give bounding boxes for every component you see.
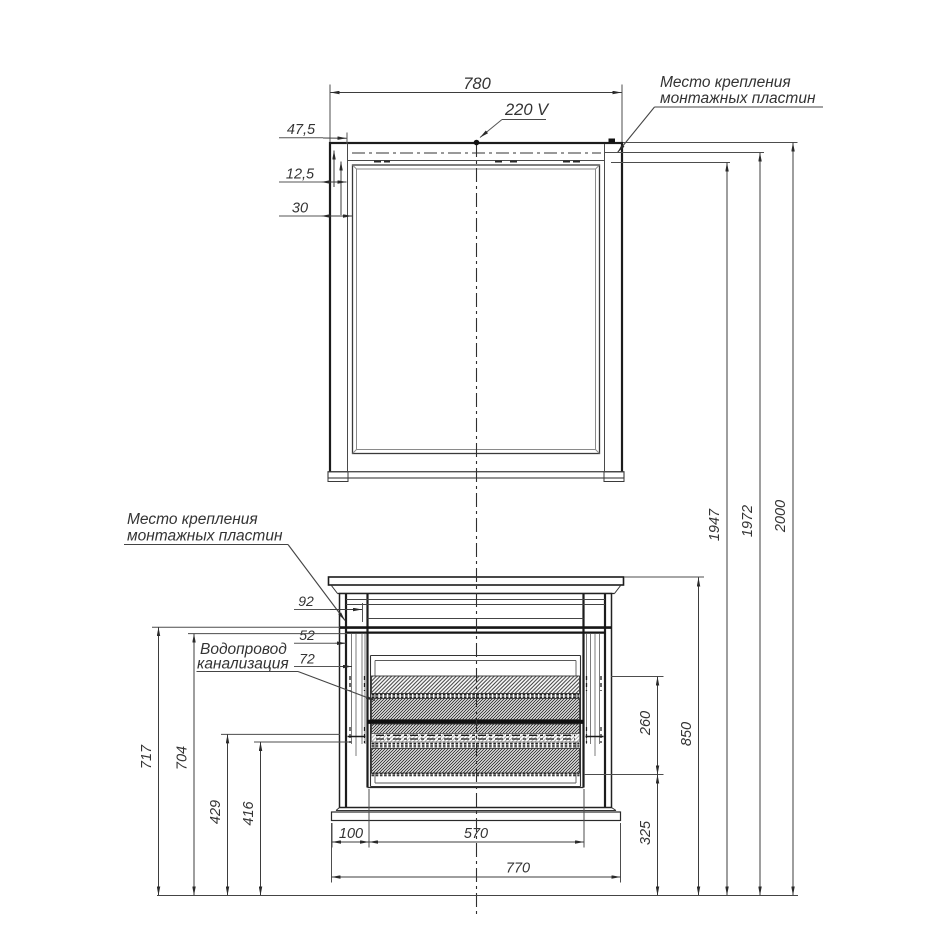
svg-text:52: 52 (299, 627, 315, 643)
svg-text:100: 100 (339, 826, 363, 842)
svg-text:325: 325 (638, 820, 654, 845)
svg-text:717: 717 (139, 744, 155, 769)
svg-text:770: 770 (506, 861, 530, 877)
svg-text:220 V: 220 V (504, 101, 550, 119)
svg-text:429: 429 (208, 800, 224, 824)
svg-text:12,5: 12,5 (286, 167, 315, 183)
svg-text:канализация: канализация (197, 656, 289, 673)
svg-text:1947: 1947 (707, 508, 723, 541)
svg-text:монтажных пластин: монтажных пластин (660, 90, 816, 107)
svg-text:30: 30 (292, 201, 308, 217)
svg-text:72: 72 (299, 651, 315, 667)
svg-text:850: 850 (679, 722, 695, 746)
svg-text:Место крепления: Место крепления (127, 511, 258, 528)
svg-text:монтажных пластин: монтажных пластин (127, 528, 283, 545)
svg-text:47,5: 47,5 (287, 122, 316, 138)
svg-text:704: 704 (175, 746, 191, 770)
svg-text:780: 780 (463, 75, 491, 93)
svg-text:92: 92 (298, 593, 314, 609)
svg-text:416: 416 (241, 800, 257, 825)
svg-text:260: 260 (638, 711, 654, 736)
svg-text:1972: 1972 (740, 505, 756, 537)
svg-text:570: 570 (464, 826, 488, 842)
svg-text:Место крепления: Место крепления (660, 74, 791, 91)
svg-text:2000: 2000 (773, 500, 789, 533)
